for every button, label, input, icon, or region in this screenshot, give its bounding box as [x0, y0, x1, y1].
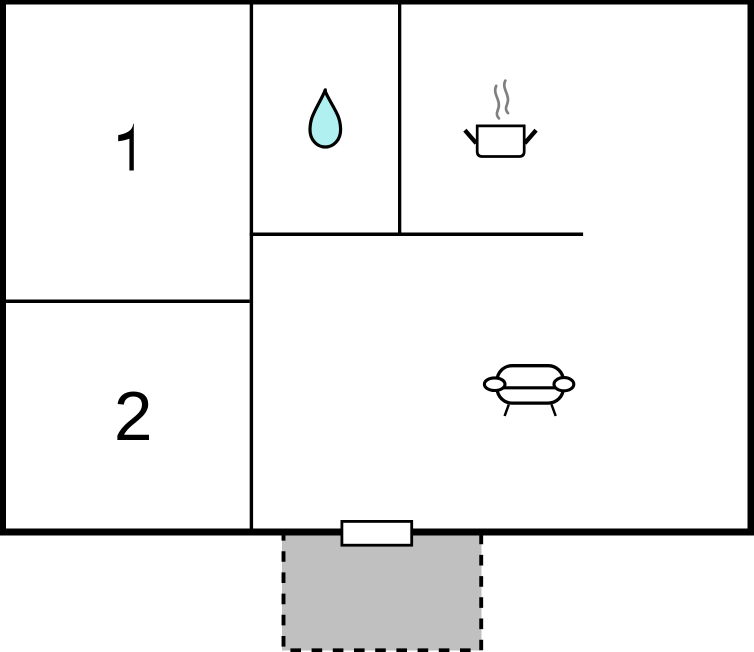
- svg-text:2: 2: [114, 377, 153, 455]
